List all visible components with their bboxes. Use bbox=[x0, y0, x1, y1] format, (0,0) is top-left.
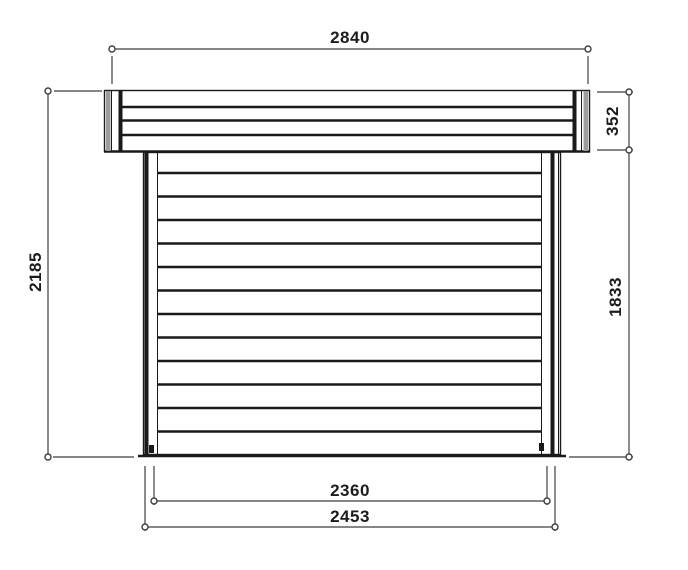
dim-label-roof-width: 2840 bbox=[300, 29, 400, 47]
dim-label-overall-height: 2185 bbox=[27, 237, 45, 307]
dim-endpoint bbox=[151, 498, 157, 504]
roof bbox=[104, 90, 590, 152]
dim-endpoint bbox=[626, 89, 632, 95]
foundation-block-right bbox=[539, 443, 544, 451]
dim-endpoint bbox=[552, 524, 558, 530]
dim-endpoint bbox=[544, 498, 550, 504]
dim-endpoint bbox=[142, 524, 148, 530]
technical-drawing-front-elevation: 2840 352 2185 1833 2360 2453 bbox=[0, 0, 688, 570]
dim-endpoint bbox=[109, 46, 115, 52]
corner-post-left bbox=[147, 152, 158, 455]
dim-label-roof-thickness: 352 bbox=[604, 86, 622, 156]
roof-fascia-left bbox=[106, 90, 121, 152]
foundation-block-left bbox=[149, 445, 154, 453]
dim-endpoint bbox=[585, 46, 591, 52]
dim-endpoint bbox=[626, 147, 632, 153]
corner-post-right bbox=[542, 152, 559, 455]
dim-endpoint bbox=[626, 454, 632, 460]
dim-endpoint bbox=[45, 454, 51, 460]
wall-planks bbox=[158, 173, 541, 432]
wall bbox=[138, 152, 566, 456]
dim-label-wall-height: 1833 bbox=[607, 262, 625, 332]
roof-fascia-right bbox=[575, 90, 589, 152]
dimension-roof-width bbox=[109, 46, 591, 84]
dim-endpoint bbox=[45, 88, 51, 94]
roof-planks bbox=[122, 107, 573, 135]
dim-label-wall-width-inner: 2360 bbox=[300, 482, 400, 500]
dim-label-wall-width-outer: 2453 bbox=[300, 508, 400, 526]
